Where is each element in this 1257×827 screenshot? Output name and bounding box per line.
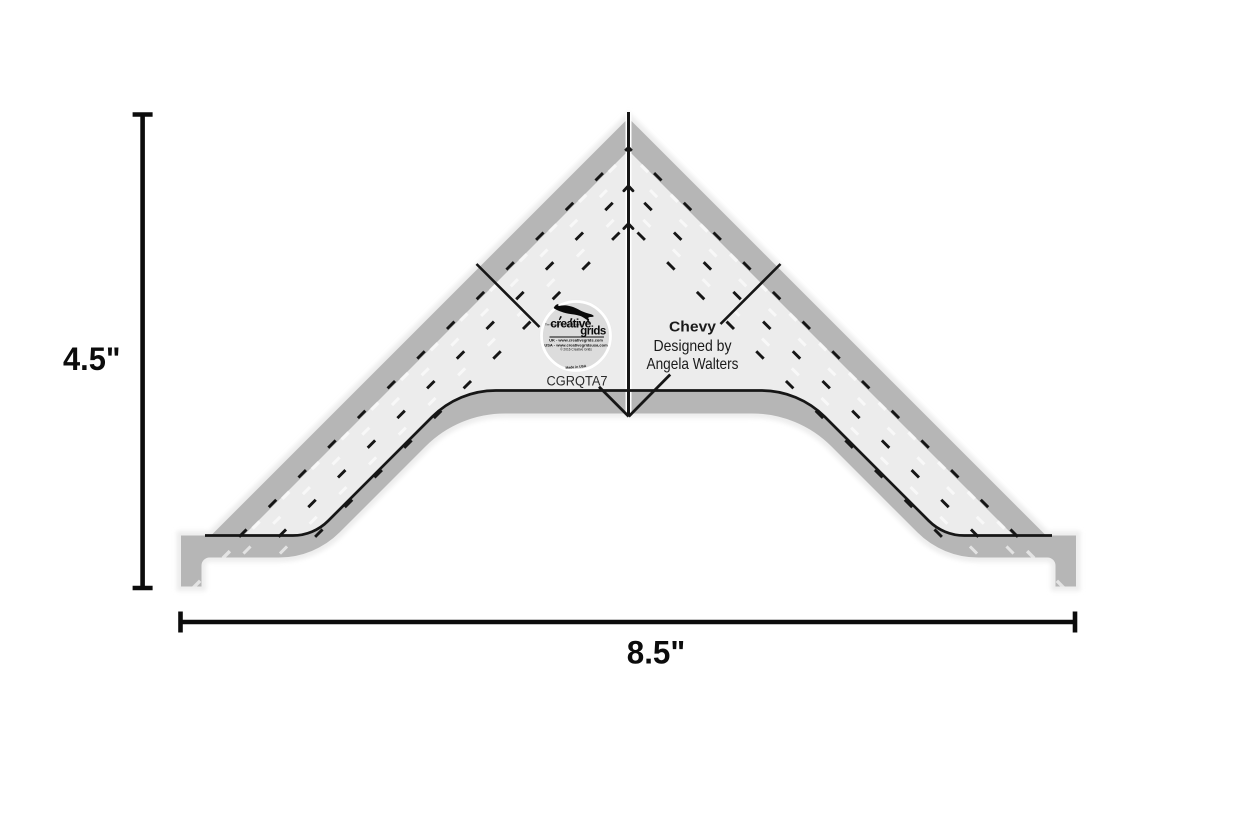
svg-text:© 2016 Creative Grids: © 2016 Creative Grids [560, 347, 592, 351]
svg-text:CGRQTA7: CGRQTA7 [547, 374, 608, 389]
svg-text:UK - www.creativegrids.com: UK - www.creativegrids.com [549, 338, 603, 343]
svg-text:4.5": 4.5" [63, 341, 121, 377]
svg-text:Chevy: Chevy [669, 319, 717, 336]
svg-text:USA - www.creativegridsusa.com: USA - www.creativegridsusa.com [544, 342, 608, 347]
svg-text:grids: grids [580, 326, 606, 338]
svg-text:Designed by: Designed by [654, 338, 732, 355]
svg-text:8.5": 8.5" [627, 635, 686, 671]
svg-text:Angela Walters: Angela Walters [647, 356, 739, 373]
